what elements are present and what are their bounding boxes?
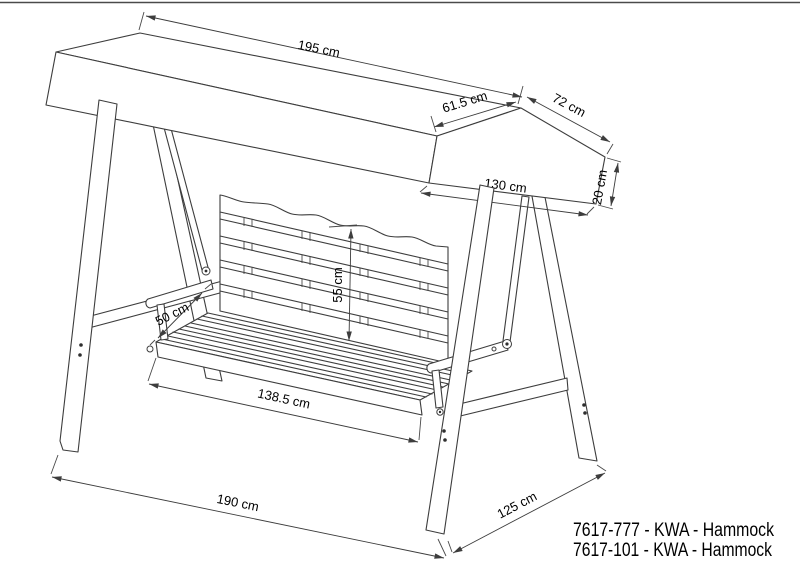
dim-label-canopy-length: 195 cm (297, 37, 342, 60)
left-seat-hook (147, 346, 153, 352)
right-crossbar (451, 378, 568, 418)
canopy (46, 33, 605, 204)
dim-label-backrest-height: 55 cm (330, 267, 345, 302)
bolt-dot (442, 429, 446, 433)
product-code-line-1: 7617-777 - KWA - Hammock (573, 520, 774, 541)
left-hanger-pivot-bolt (205, 270, 208, 273)
bolt-dot (443, 438, 447, 442)
hammock-technical-drawing: 195 cm 61.5 cm 72 cm 130 cm 20 cm (0, 0, 800, 569)
right-seat-hook-bolt (439, 411, 441, 413)
product-codes: 7617-777 - KWA - Hammock 7617-101 - KWA … (573, 520, 774, 561)
bolt-dot (583, 411, 587, 415)
drawing-canvas: 195 cm 61.5 cm 72 cm 130 cm 20 cm (0, 0, 800, 569)
bolt-dot (79, 343, 83, 347)
dim-label-frame-depth: 125 cm (495, 489, 540, 522)
dim-label-canopy-rear-panel: 72 cm (550, 90, 588, 120)
dim-label-frame-width: 190 cm (216, 491, 261, 514)
right-armrest-bolt (492, 347, 496, 351)
right-hanger-pivot-bolt (505, 342, 508, 345)
product-code-line-2: 7617-101 - KWA - Hammock (573, 540, 772, 561)
bolt-dot (78, 353, 82, 357)
front-left-leg (60, 100, 117, 452)
dim-frame-width: 190 cm (51, 455, 446, 558)
back-right-leg (530, 185, 597, 461)
right-hanger-bar (503, 196, 529, 342)
bolt-dot (582, 403, 586, 407)
